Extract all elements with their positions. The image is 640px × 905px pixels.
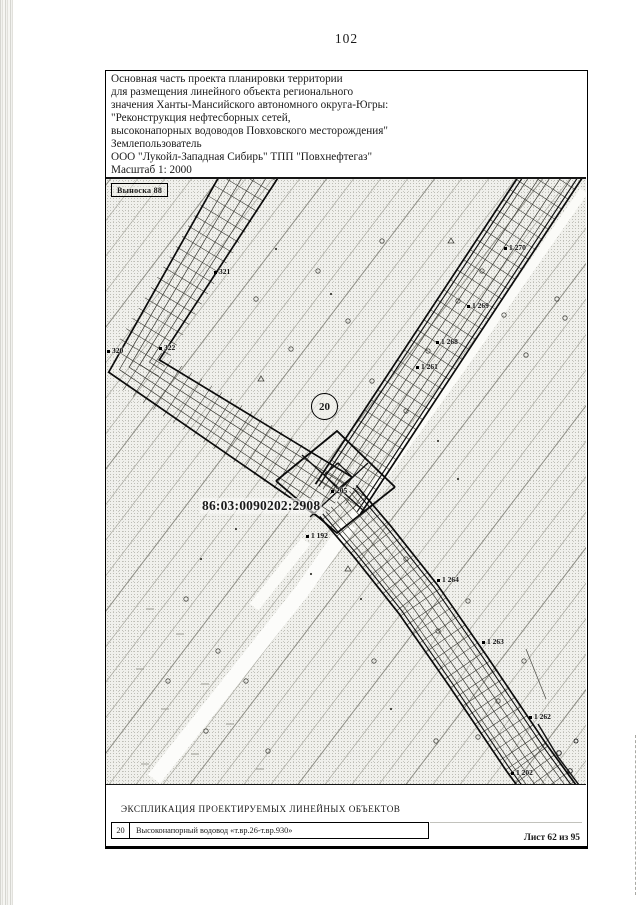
map-point-label: 1 264 (437, 575, 459, 584)
sheet-label: Лист 62 из 95 (524, 833, 580, 843)
map-point-label: 1 261 (416, 362, 438, 371)
page-number: 102 (105, 31, 588, 47)
title-block: Основная часть проекта планировки террит… (106, 71, 587, 177)
map-area: Выноска 88 86:03:0090202:2908 20 3213223… (106, 177, 586, 785)
document-frame: Основная часть проекта планировки террит… (105, 70, 588, 849)
title-line: Землепользователь (111, 138, 583, 151)
map-point-label: 1 202 (511, 768, 533, 777)
map-point-label: 321 (214, 267, 230, 276)
title-line: высоконапорных водоводов Повховского мес… (111, 125, 583, 138)
scan-edge-artifact (0, 0, 13, 905)
legend-row: 20 Высоконапорный водовод «т.вр.26-т.вр.… (111, 822, 429, 839)
map-point-label: 1 263 (482, 637, 504, 646)
map-point-label: 1 270 (504, 243, 526, 252)
map-point-label: 320 (107, 346, 123, 355)
title-line: Основная часть проекта планировки террит… (111, 73, 583, 86)
map-point-label: 1 269 (467, 301, 489, 310)
map-point-label: 1 268 (436, 337, 458, 346)
legend-row-code: 20 (111, 823, 130, 838)
title-line: ООО "Лукойл-Западная Сибирь" ТПП "Повхне… (111, 151, 583, 164)
legend-row-name: Высоконапорный водовод «т.вр.26-т.вр.930… (133, 823, 429, 838)
legend-block: ЭКСПЛИКАЦИЯ ПРОЕКТИРУЕМЫХ ЛИНЕЙНЫХ ОБЪЕК… (106, 782, 586, 844)
legend-title: ЭКСПЛИКАЦИЯ ПРОЕКТИРУЕМЫХ ЛИНЕЙНЫХ ОБЪЕК… (121, 804, 400, 814)
cadastral-number: 86:03:0090202:2908 (200, 498, 322, 514)
title-line: Масштаб 1: 2000 (111, 164, 583, 177)
map-point-label: 1 192 (306, 531, 328, 540)
title-line: значения Ханты-Мансийского автономного о… (111, 99, 583, 112)
title-line: для размещения линейного объекта региона… (111, 86, 583, 99)
route-number-badge: 20 (311, 393, 338, 420)
map-drawing (106, 179, 586, 784)
map-point-label: 322 (159, 343, 175, 352)
map-point-label: 1 262 (529, 712, 551, 721)
title-line: "Реконструкция нефтесборных сетей, (111, 112, 583, 125)
scan-edge-artifact-right (635, 735, 636, 895)
map-point-label: 205 (331, 486, 347, 495)
callout-label: Выноска 88 (111, 183, 168, 197)
scan-line-artifact (430, 822, 582, 823)
